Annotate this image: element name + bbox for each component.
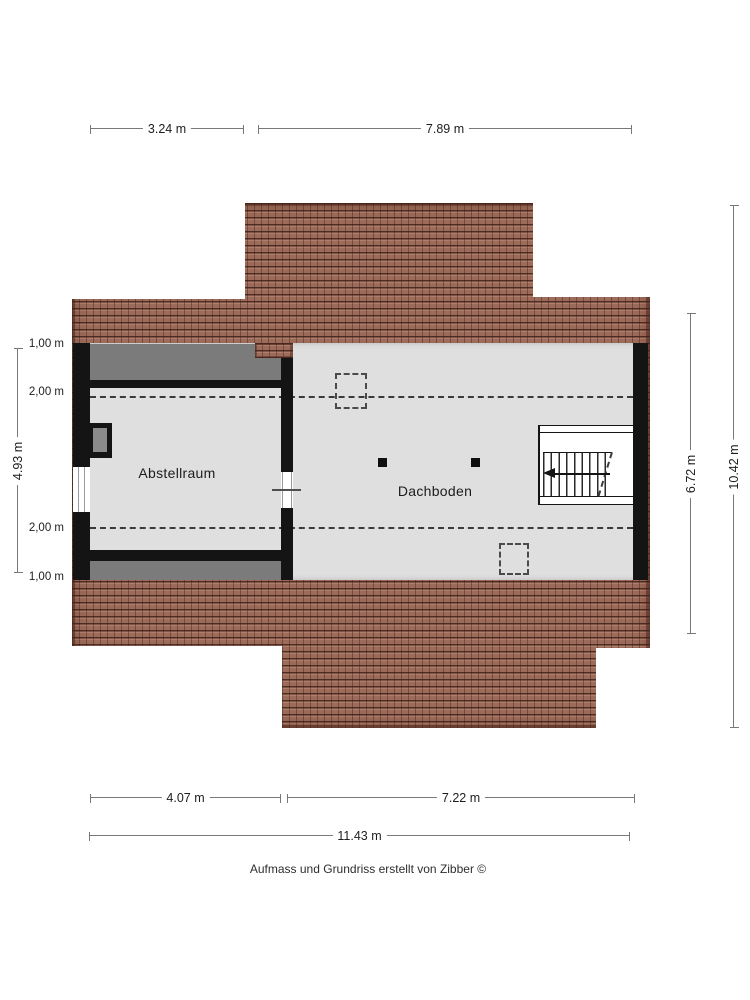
wall-left-lower	[73, 515, 90, 580]
dim-left-total-label: 4.93 m	[11, 436, 25, 484]
knee-wall-bottom	[90, 550, 281, 561]
divider-wall-upper	[281, 357, 293, 472]
room-label-storage: Abstellraum	[138, 465, 215, 481]
knee-wall-top	[90, 380, 281, 388]
roof-opening-dashed-top	[335, 373, 367, 409]
dim-top-left: 3.24 m	[90, 128, 244, 129]
roof-carve-top-left	[72, 203, 245, 299]
stair-rail-top	[538, 425, 633, 433]
dim-top-right-label: 7.89 m	[421, 122, 469, 136]
footer-credit: Aufmass und Grundriss erstellt von Zibbe…	[250, 862, 486, 876]
height-label-1: 1,00 m	[8, 338, 64, 350]
roof-carve-bottom-right	[596, 648, 650, 728]
height-label-2: 2,00 m	[8, 386, 64, 398]
chimney-flue	[93, 428, 107, 452]
stair-rail-bottom	[538, 496, 633, 505]
door-opening-cross-line	[272, 489, 301, 491]
support-post-left	[378, 458, 387, 467]
wall-left-upper	[73, 343, 90, 464]
stairwell-left-edge	[538, 425, 540, 505]
dim-bottom-total: 11.43 m	[89, 835, 630, 836]
roof-patch-junction	[255, 343, 293, 358]
dim-bottom-left: 4.07 m	[90, 797, 281, 798]
wall-right	[633, 343, 648, 580]
support-post-right	[471, 458, 480, 467]
dim-left-total: 4.93 m	[17, 348, 18, 573]
roof-carve-bottom-left	[72, 646, 282, 728]
dim-bottom-right-label: 7.22 m	[437, 791, 485, 805]
height-label-3: 2,00 m	[8, 522, 64, 534]
dim-bottom-left-label: 4.07 m	[161, 791, 209, 805]
dim-top-right: 7.89 m	[258, 128, 632, 129]
dim-bottom-total-label: 11.43 m	[332, 829, 386, 843]
divider-wall-lower	[281, 508, 293, 580]
dim-right-total: 10.42 m	[733, 205, 734, 728]
slope-band-top	[90, 344, 281, 380]
slope-band-bottom	[90, 561, 281, 580]
dim-right-inner: 6.72 m	[690, 313, 691, 634]
floorplan-page: Abstellraum Dachboden 3.24 m 7.89 m 4.07…	[0, 0, 750, 1000]
headroom-line-bottom	[90, 527, 633, 529]
roof-carve-top-right	[533, 203, 650, 297]
roof-opening-dashed-bottom	[499, 543, 529, 575]
room-label-attic: Dachboden	[398, 483, 472, 499]
stair-direction-line	[549, 473, 610, 475]
dim-right-inner-label: 6.72 m	[684, 449, 698, 497]
dim-bottom-right: 7.22 m	[287, 797, 635, 798]
height-label-4: 1,00 m	[8, 571, 64, 583]
window-left-wall	[73, 464, 90, 515]
dim-top-left-label: 3.24 m	[143, 122, 191, 136]
stair-direction-arrow	[543, 468, 555, 478]
dim-right-total-label: 10.42 m	[727, 439, 741, 494]
